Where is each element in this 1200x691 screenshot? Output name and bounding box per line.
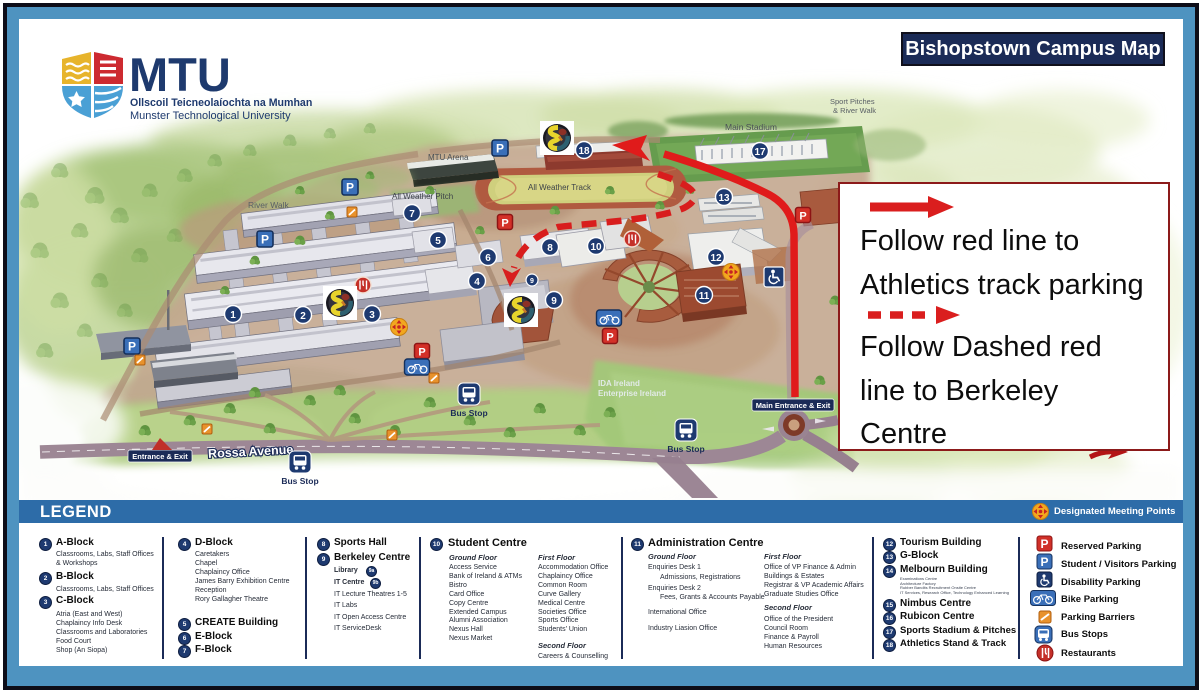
svg-text:7: 7 <box>409 209 415 220</box>
svg-text:12: 12 <box>710 253 722 264</box>
svg-text:2: 2 <box>300 311 306 322</box>
svg-text:4: 4 <box>474 277 480 288</box>
svg-text:3: 3 <box>369 310 375 321</box>
svg-text:5: 5 <box>435 236 441 247</box>
svg-text:9: 9 <box>551 296 557 307</box>
svg-text:11: 11 <box>699 291 710 302</box>
svg-text:& River Walk: & River Walk <box>833 106 876 115</box>
svg-text:Enterprise Ireland: Enterprise Ireland <box>598 389 666 398</box>
svg-text:Main Entrance & Exit: Main Entrance & Exit <box>756 401 831 410</box>
svg-text:All Weather Pitch: All Weather Pitch <box>392 192 453 201</box>
svg-text:Ollscoil Teicneolaíochta na Mu: Ollscoil Teicneolaíochta na Mumhan <box>130 97 312 109</box>
svg-text:6: 6 <box>485 253 491 264</box>
svg-text:IDA Ireland: IDA Ireland <box>598 379 640 388</box>
svg-text:1: 1 <box>230 310 236 321</box>
svg-text:10: 10 <box>590 242 602 253</box>
svg-text:River Walk: River Walk <box>248 200 290 210</box>
svg-text:17: 17 <box>754 147 766 158</box>
svg-text:P: P <box>1040 555 1048 569</box>
svg-text:Munster Technological Universi: Munster Technological University <box>130 110 291 122</box>
svg-text:Bus Stop: Bus Stop <box>667 444 704 454</box>
svg-text:Sport Pitches: Sport Pitches <box>830 97 875 106</box>
svg-text:9: 9 <box>530 278 534 285</box>
svg-text:8: 8 <box>547 243 553 254</box>
svg-text:MTU: MTU <box>129 48 231 101</box>
svg-text:Bus Stop: Bus Stop <box>281 476 318 486</box>
svg-text:Entrance & Exit: Entrance & Exit <box>132 452 188 461</box>
svg-text:All Weather Track: All Weather Track <box>528 183 592 192</box>
svg-text:P: P <box>1040 537 1048 551</box>
svg-text:Bus Stop: Bus Stop <box>450 408 487 418</box>
svg-text:18: 18 <box>578 146 590 157</box>
svg-text:MTU Arena: MTU Arena <box>428 153 469 162</box>
svg-text:Main Stadium: Main Stadium <box>725 122 777 132</box>
svg-text:13: 13 <box>718 193 730 204</box>
